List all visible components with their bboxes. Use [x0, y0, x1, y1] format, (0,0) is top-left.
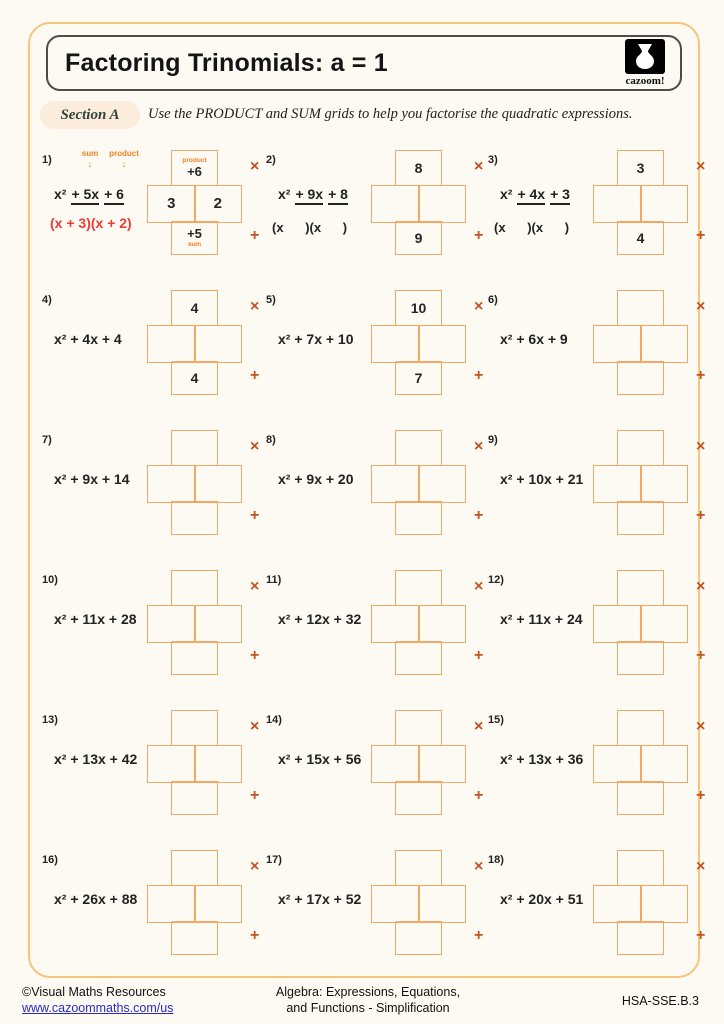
annotation-text: product: [109, 149, 139, 158]
problem-number: 16): [42, 854, 58, 866]
product-sum-grid: 44×+: [146, 290, 270, 396]
expression-term: x²: [278, 186, 290, 202]
factor-row: [371, 605, 466, 643]
product-value: 10: [396, 291, 441, 325]
product-sum-grid: 89×+: [370, 150, 494, 256]
problem-8: 8)x² + 9x + 20×+: [264, 427, 482, 563]
multiply-icon: ×: [696, 719, 705, 735]
product-sum-grid: ×+: [146, 570, 270, 676]
product-box: 10: [395, 290, 442, 326]
multiply-icon: ×: [474, 579, 483, 595]
multiply-icon: ×: [250, 159, 259, 175]
product-box: [171, 430, 218, 466]
multiply-icon: ×: [250, 859, 259, 875]
problem-number: 3): [488, 154, 498, 166]
page-title: Factoring Trinomials: a = 1: [65, 49, 388, 78]
sum-value: [618, 782, 663, 814]
product-box: [617, 850, 664, 886]
factor-row: [371, 465, 466, 503]
quadratic-expression: x² + 11x + 24: [500, 611, 588, 627]
expression-term: + 3: [550, 186, 570, 205]
factor-value-right: [641, 186, 688, 222]
sum-box: [617, 501, 664, 535]
multiply-icon: ×: [250, 439, 259, 455]
quadratic-expression: x² + 17x + 52: [278, 891, 366, 907]
expression-term: + 6: [104, 186, 124, 205]
quadratic-expression: x² + 12x + 32: [278, 611, 366, 627]
factor-row: [593, 745, 688, 783]
sum-box-content: +5sum: [172, 222, 217, 254]
problem-number: 13): [42, 714, 58, 726]
plus-icon: +: [474, 788, 483, 804]
quadratic-expression: x² + 11x + 28: [54, 611, 142, 627]
quadratic-expression: x² + 9x + 20: [278, 471, 359, 487]
sum-box-label: sum: [188, 241, 201, 249]
plus-icon: +: [250, 648, 259, 664]
expression-term: x²: [500, 186, 512, 202]
factor-value-left: [372, 886, 419, 922]
factor-value-right: [195, 326, 242, 362]
product-sum-grid: ×+: [592, 290, 716, 396]
sum-value: [172, 642, 217, 674]
multiply-icon: ×: [696, 579, 705, 595]
sum-box: 7: [395, 361, 442, 395]
problem-number: 7): [42, 434, 52, 446]
footer-copyright: ©Visual Maths Resources: [22, 984, 173, 1000]
factor-value-right: [419, 746, 466, 782]
sum-value: +5: [187, 227, 202, 241]
expression-term: x² + 15x + 56: [278, 751, 361, 767]
product-value: [618, 431, 663, 465]
expression-term: x² + 13x + 36: [500, 751, 583, 767]
arrow-down-icon: ↓: [82, 160, 98, 169]
problem-1: 1)sum↓product↓x²+ 5x+ 6(x + 3)(x + 2)pro…: [40, 147, 258, 283]
expression-term: x² + 11x + 28: [54, 611, 137, 627]
product-value: 3: [618, 151, 663, 185]
factor-value-left: [594, 326, 641, 362]
footer-topic-line1: Algebra: Expressions, Equations,: [248, 984, 488, 1000]
product-box: [395, 710, 442, 746]
problem-2: 2)x²+ 9x+ 8(x )(x )89×+: [264, 147, 482, 283]
product-box: 3: [617, 150, 664, 186]
product-value: [172, 431, 217, 465]
product-value: [172, 571, 217, 605]
factor-value-left: [372, 466, 419, 502]
product-sum-grid: ×+: [146, 850, 270, 956]
product-box: 8: [395, 150, 442, 186]
product-value: [618, 851, 663, 885]
sum-box: [171, 781, 218, 815]
problem-5: 5)x² + 7x + 10107×+: [264, 287, 482, 423]
factor-values: [594, 326, 687, 362]
plus-icon: +: [474, 508, 483, 524]
factor-value-right: [419, 326, 466, 362]
factor-row: [593, 325, 688, 363]
product-sum-grid: ×+: [592, 850, 716, 956]
factor-values: [372, 186, 465, 222]
factor-value-left: [594, 606, 641, 642]
factor-value-right: [419, 186, 466, 222]
annotation-sum-label: sum↓: [82, 149, 98, 169]
sum-box: 4: [617, 221, 664, 255]
multiply-icon: ×: [474, 439, 483, 455]
product-value: 8: [396, 151, 441, 185]
factor-value-left: [372, 746, 419, 782]
expression-term: + 4x: [517, 186, 545, 205]
plus-icon: +: [250, 508, 259, 524]
sum-box: [395, 921, 442, 955]
product-box: [395, 430, 442, 466]
plus-icon: +: [696, 648, 705, 664]
problem-13: 13)x² + 13x + 42×+: [40, 707, 258, 843]
problem-number: 9): [488, 434, 498, 446]
footer-left: ©Visual Maths Resources www.cazoommaths.…: [22, 984, 173, 1016]
cazoom-logo: cazoom!: [617, 39, 673, 87]
factor-row: [147, 885, 242, 923]
expression-term: x² + 17x + 52: [278, 891, 361, 907]
factor-row: [371, 185, 466, 223]
plus-icon: +: [696, 228, 705, 244]
section-label: Section A: [40, 101, 140, 129]
sum-box: [395, 501, 442, 535]
factor-values: [148, 466, 241, 502]
plus-icon: +: [474, 648, 483, 664]
product-box: 4: [171, 290, 218, 326]
product-value: [396, 571, 441, 605]
factor-value-right: 2: [195, 186, 242, 222]
sum-value: [396, 502, 441, 534]
product-box: [617, 710, 664, 746]
product-value: 4: [172, 291, 217, 325]
product-value: [618, 291, 663, 325]
problem-10: 10)x² + 11x + 28×+: [40, 567, 258, 703]
product-box: [171, 570, 218, 606]
plus-icon: +: [474, 928, 483, 944]
factor-value-right: [195, 606, 242, 642]
problem-3: 3)x²+ 4x+ 3(x )(x )34×+: [486, 147, 704, 283]
product-value: [396, 431, 441, 465]
multiply-icon: ×: [696, 439, 705, 455]
expression-term: x² + 13x + 42: [54, 751, 137, 767]
multiply-icon: ×: [474, 719, 483, 735]
sum-value: 4: [618, 222, 663, 254]
factor-values: [594, 886, 687, 922]
product-box: [395, 850, 442, 886]
sum-value: [172, 502, 217, 534]
problem-18: 18)x² + 20x + 51×+: [486, 847, 704, 983]
footer-topic: Algebra: Expressions, Equations, and Fun…: [248, 984, 488, 1016]
sum-box: [617, 641, 664, 675]
factor-value-left: [594, 746, 641, 782]
factor-values: [372, 466, 465, 502]
factor-row: 32: [147, 185, 242, 223]
product-box: [395, 570, 442, 606]
expression-term: x² + 4x + 4: [54, 331, 122, 347]
product-value: [396, 711, 441, 745]
quadratic-expression: x² + 13x + 36: [500, 751, 588, 767]
product-sum-grid: ×+: [592, 570, 716, 676]
factor-value-left: [148, 466, 195, 502]
sum-box: [171, 501, 218, 535]
expression-term: x² + 20x + 51: [500, 891, 583, 907]
product-value: [172, 851, 217, 885]
footer-topic-line2: and Functions - Simplification: [248, 1000, 488, 1016]
sum-value: [618, 922, 663, 954]
factor-value-right: [195, 746, 242, 782]
multiply-icon: ×: [250, 299, 259, 315]
sum-box: [617, 921, 664, 955]
quadratic-expression: x² + 26x + 88: [54, 891, 142, 907]
multiply-icon: ×: [474, 159, 483, 175]
sum-box: [395, 781, 442, 815]
factor-values: [594, 746, 687, 782]
problem-15: 15)x² + 13x + 36×+: [486, 707, 704, 843]
factor-value-left: [148, 326, 195, 362]
product-sum-grid: ×+: [370, 850, 494, 956]
factor-row: [593, 885, 688, 923]
cazoom-logo-text: cazoom!: [617, 75, 673, 87]
factor-row: [593, 465, 688, 503]
problem-11: 11)x² + 12x + 32×+: [264, 567, 482, 703]
quadratic-expression: x² + 9x + 14: [54, 471, 135, 487]
factor-values: [372, 746, 465, 782]
sum-box: 4: [171, 361, 218, 395]
quadratic-expression: x² + 6x + 9: [500, 331, 573, 347]
factor-row: [371, 325, 466, 363]
plus-icon: +: [696, 368, 705, 384]
factor-value-right: [419, 466, 466, 502]
header: Factoring Trinomials: a = 1 cazoom!: [46, 35, 682, 91]
sum-box: [395, 641, 442, 675]
problem-number: 4): [42, 294, 52, 306]
problem-number: 6): [488, 294, 498, 306]
annotation-product-label: product↓: [109, 149, 139, 169]
factor-values: [148, 326, 241, 362]
problem-number: 2): [266, 154, 276, 166]
problem-number: 8): [266, 434, 276, 446]
sum-value: [618, 502, 663, 534]
sum-value: [172, 922, 217, 954]
sum-value: 4: [172, 362, 217, 394]
multiply-icon: ×: [696, 159, 705, 175]
factor-values: [148, 886, 241, 922]
product-sum-grid: ×+: [370, 570, 494, 676]
factored-answer: (x + 3)(x + 2): [50, 215, 132, 231]
factor-values: [372, 326, 465, 362]
sum-value: 7: [396, 362, 441, 394]
problem-number: 17): [266, 854, 282, 866]
factor-values: [148, 746, 241, 782]
factor-hint: (x )(x ): [494, 220, 569, 235]
expression-term: x² + 10x + 21: [500, 471, 583, 487]
product-box: product+6: [171, 150, 218, 186]
arrow-down-icon: ↓: [109, 160, 139, 169]
factor-value-right: [195, 466, 242, 502]
problem-number: 15): [488, 714, 504, 726]
quadratic-expression: x² + 15x + 56: [278, 751, 366, 767]
plus-icon: +: [696, 928, 705, 944]
factor-values: [594, 186, 687, 222]
product-value: [618, 711, 663, 745]
product-sum-grid: ×+: [146, 430, 270, 536]
factor-value-left: 3: [148, 186, 195, 222]
expression-term: x²: [54, 186, 66, 202]
cazoom-logo-icon: [625, 39, 665, 74]
factor-values: [148, 606, 241, 642]
section-label-text: Section A: [60, 107, 119, 124]
problem-number: 12): [488, 574, 504, 586]
factor-value-left: [148, 606, 195, 642]
product-value: +6: [187, 165, 202, 179]
product-value: [618, 571, 663, 605]
sum-box: [617, 781, 664, 815]
expression-term: x² + 7x + 10: [278, 331, 354, 347]
quadratic-expression: x² + 7x + 10: [278, 331, 359, 347]
plus-icon: +: [474, 228, 483, 244]
plus-icon: +: [474, 368, 483, 384]
multiply-icon: ×: [250, 579, 259, 595]
product-sum-grid: 107×+: [370, 290, 494, 396]
factor-values: [594, 606, 687, 642]
product-sum-grid: ×+: [592, 430, 716, 536]
factor-value-left: [372, 186, 419, 222]
expression-term: x² + 9x + 20: [278, 471, 354, 487]
problem-number: 14): [266, 714, 282, 726]
sum-box: 9: [395, 221, 442, 255]
expression-term: x² + 9x + 14: [54, 471, 130, 487]
plus-icon: +: [696, 508, 705, 524]
plus-icon: +: [696, 788, 705, 804]
sum-value: [396, 782, 441, 814]
problem-6: 6)x² + 6x + 9×+: [486, 287, 704, 423]
problem-number: 10): [42, 574, 58, 586]
expression-term: + 9x: [295, 186, 323, 205]
multiply-icon: ×: [474, 299, 483, 315]
plus-icon: +: [250, 928, 259, 944]
problem-16: 16)x² + 26x + 88×+: [40, 847, 258, 983]
factor-value-right: [641, 326, 688, 362]
factor-values: [594, 466, 687, 502]
multiply-icon: ×: [696, 299, 705, 315]
quadratic-expression: x² + 10x + 21: [500, 471, 588, 487]
factor-hint: (x )(x ): [272, 220, 347, 235]
factor-values: [372, 606, 465, 642]
factor-row: [147, 745, 242, 783]
expression-term: + 8: [328, 186, 348, 205]
product-sum-grid: 34×+: [592, 150, 716, 256]
factor-row: [147, 465, 242, 503]
expression-term: + 5x: [71, 186, 99, 205]
multiply-icon: ×: [696, 859, 705, 875]
product-sum-grid: product+632+5sum×+: [146, 150, 270, 256]
factor-row: [147, 325, 242, 363]
factor-value-right: [641, 746, 688, 782]
expression-term: x² + 12x + 32: [278, 611, 361, 627]
factor-values: 32: [148, 186, 241, 222]
product-box: [617, 570, 664, 606]
factor-value-left: [148, 746, 195, 782]
quadratic-expression: x²+ 5x+ 6: [54, 186, 129, 202]
factor-value-left: [594, 886, 641, 922]
problem-17: 17)x² + 17x + 52×+: [264, 847, 482, 983]
quadratic-expression: x² + 4x + 4: [54, 331, 127, 347]
problem-12: 12)x² + 11x + 24×+: [486, 567, 704, 703]
product-box: [171, 850, 218, 886]
quadratic-expression: x²+ 9x+ 8: [278, 186, 353, 202]
plus-icon: +: [250, 228, 259, 244]
sum-value: [396, 642, 441, 674]
sum-value: [396, 922, 441, 954]
sum-box: [171, 641, 218, 675]
sum-box: +5sum: [171, 221, 218, 255]
problem-4: 4)x² + 4x + 444×+: [40, 287, 258, 423]
product-sum-grid: ×+: [146, 710, 270, 816]
product-box-content: product+6: [172, 151, 217, 185]
product-box: [171, 710, 218, 746]
product-sum-grid: ×+: [370, 430, 494, 536]
multiply-icon: ×: [250, 719, 259, 735]
problem-number: 11): [266, 574, 281, 586]
factor-values: [372, 886, 465, 922]
quadratic-expression: x² + 20x + 51: [500, 891, 588, 907]
sum-value: 9: [396, 222, 441, 254]
product-value: [396, 851, 441, 885]
sum-value: [618, 362, 663, 394]
annotation-text: sum: [82, 149, 98, 158]
product-sum-grid: ×+: [592, 710, 716, 816]
factor-value-right: [641, 886, 688, 922]
expression-term: x² + 6x + 9: [500, 331, 568, 347]
factor-value-left: [372, 606, 419, 642]
factor-value-right: [419, 606, 466, 642]
sum-box: [617, 361, 664, 395]
plus-icon: +: [250, 368, 259, 384]
product-box: [617, 290, 664, 326]
factor-row: [371, 745, 466, 783]
factor-value-left: [594, 186, 641, 222]
quadratic-expression: x² + 13x + 42: [54, 751, 142, 767]
problem-number: 1): [42, 154, 52, 166]
problem-7: 7)x² + 9x + 14×+: [40, 427, 258, 563]
problem-number: 5): [266, 294, 276, 306]
product-value: [172, 711, 217, 745]
factor-row: [371, 885, 466, 923]
factor-value-right: [641, 466, 688, 502]
expression-term: x² + 26x + 88: [54, 891, 137, 907]
problem-number: 18): [488, 854, 504, 866]
factor-value-left: [148, 886, 195, 922]
problem-9: 9)x² + 10x + 21×+: [486, 427, 704, 563]
footer-website-link[interactable]: www.cazoommaths.com/us: [22, 1001, 173, 1015]
product-box: [617, 430, 664, 466]
plus-icon: +: [250, 788, 259, 804]
factor-value-right: [641, 606, 688, 642]
factor-row: [593, 605, 688, 643]
factor-value-left: [594, 466, 641, 502]
instruction-text: Use the PRODUCT and SUM grids to help yo…: [148, 106, 633, 123]
sum-value: [618, 642, 663, 674]
factor-row: [593, 185, 688, 223]
expression-term: x² + 11x + 24: [500, 611, 583, 627]
footer-standard-code: HSA-SSE.B.3: [622, 994, 699, 1008]
sum-value: [172, 782, 217, 814]
factor-value-right: [195, 886, 242, 922]
sum-box: [171, 921, 218, 955]
factor-row: [147, 605, 242, 643]
multiply-icon: ×: [474, 859, 483, 875]
product-sum-grid: ×+: [370, 710, 494, 816]
factor-value-left: [372, 326, 419, 362]
